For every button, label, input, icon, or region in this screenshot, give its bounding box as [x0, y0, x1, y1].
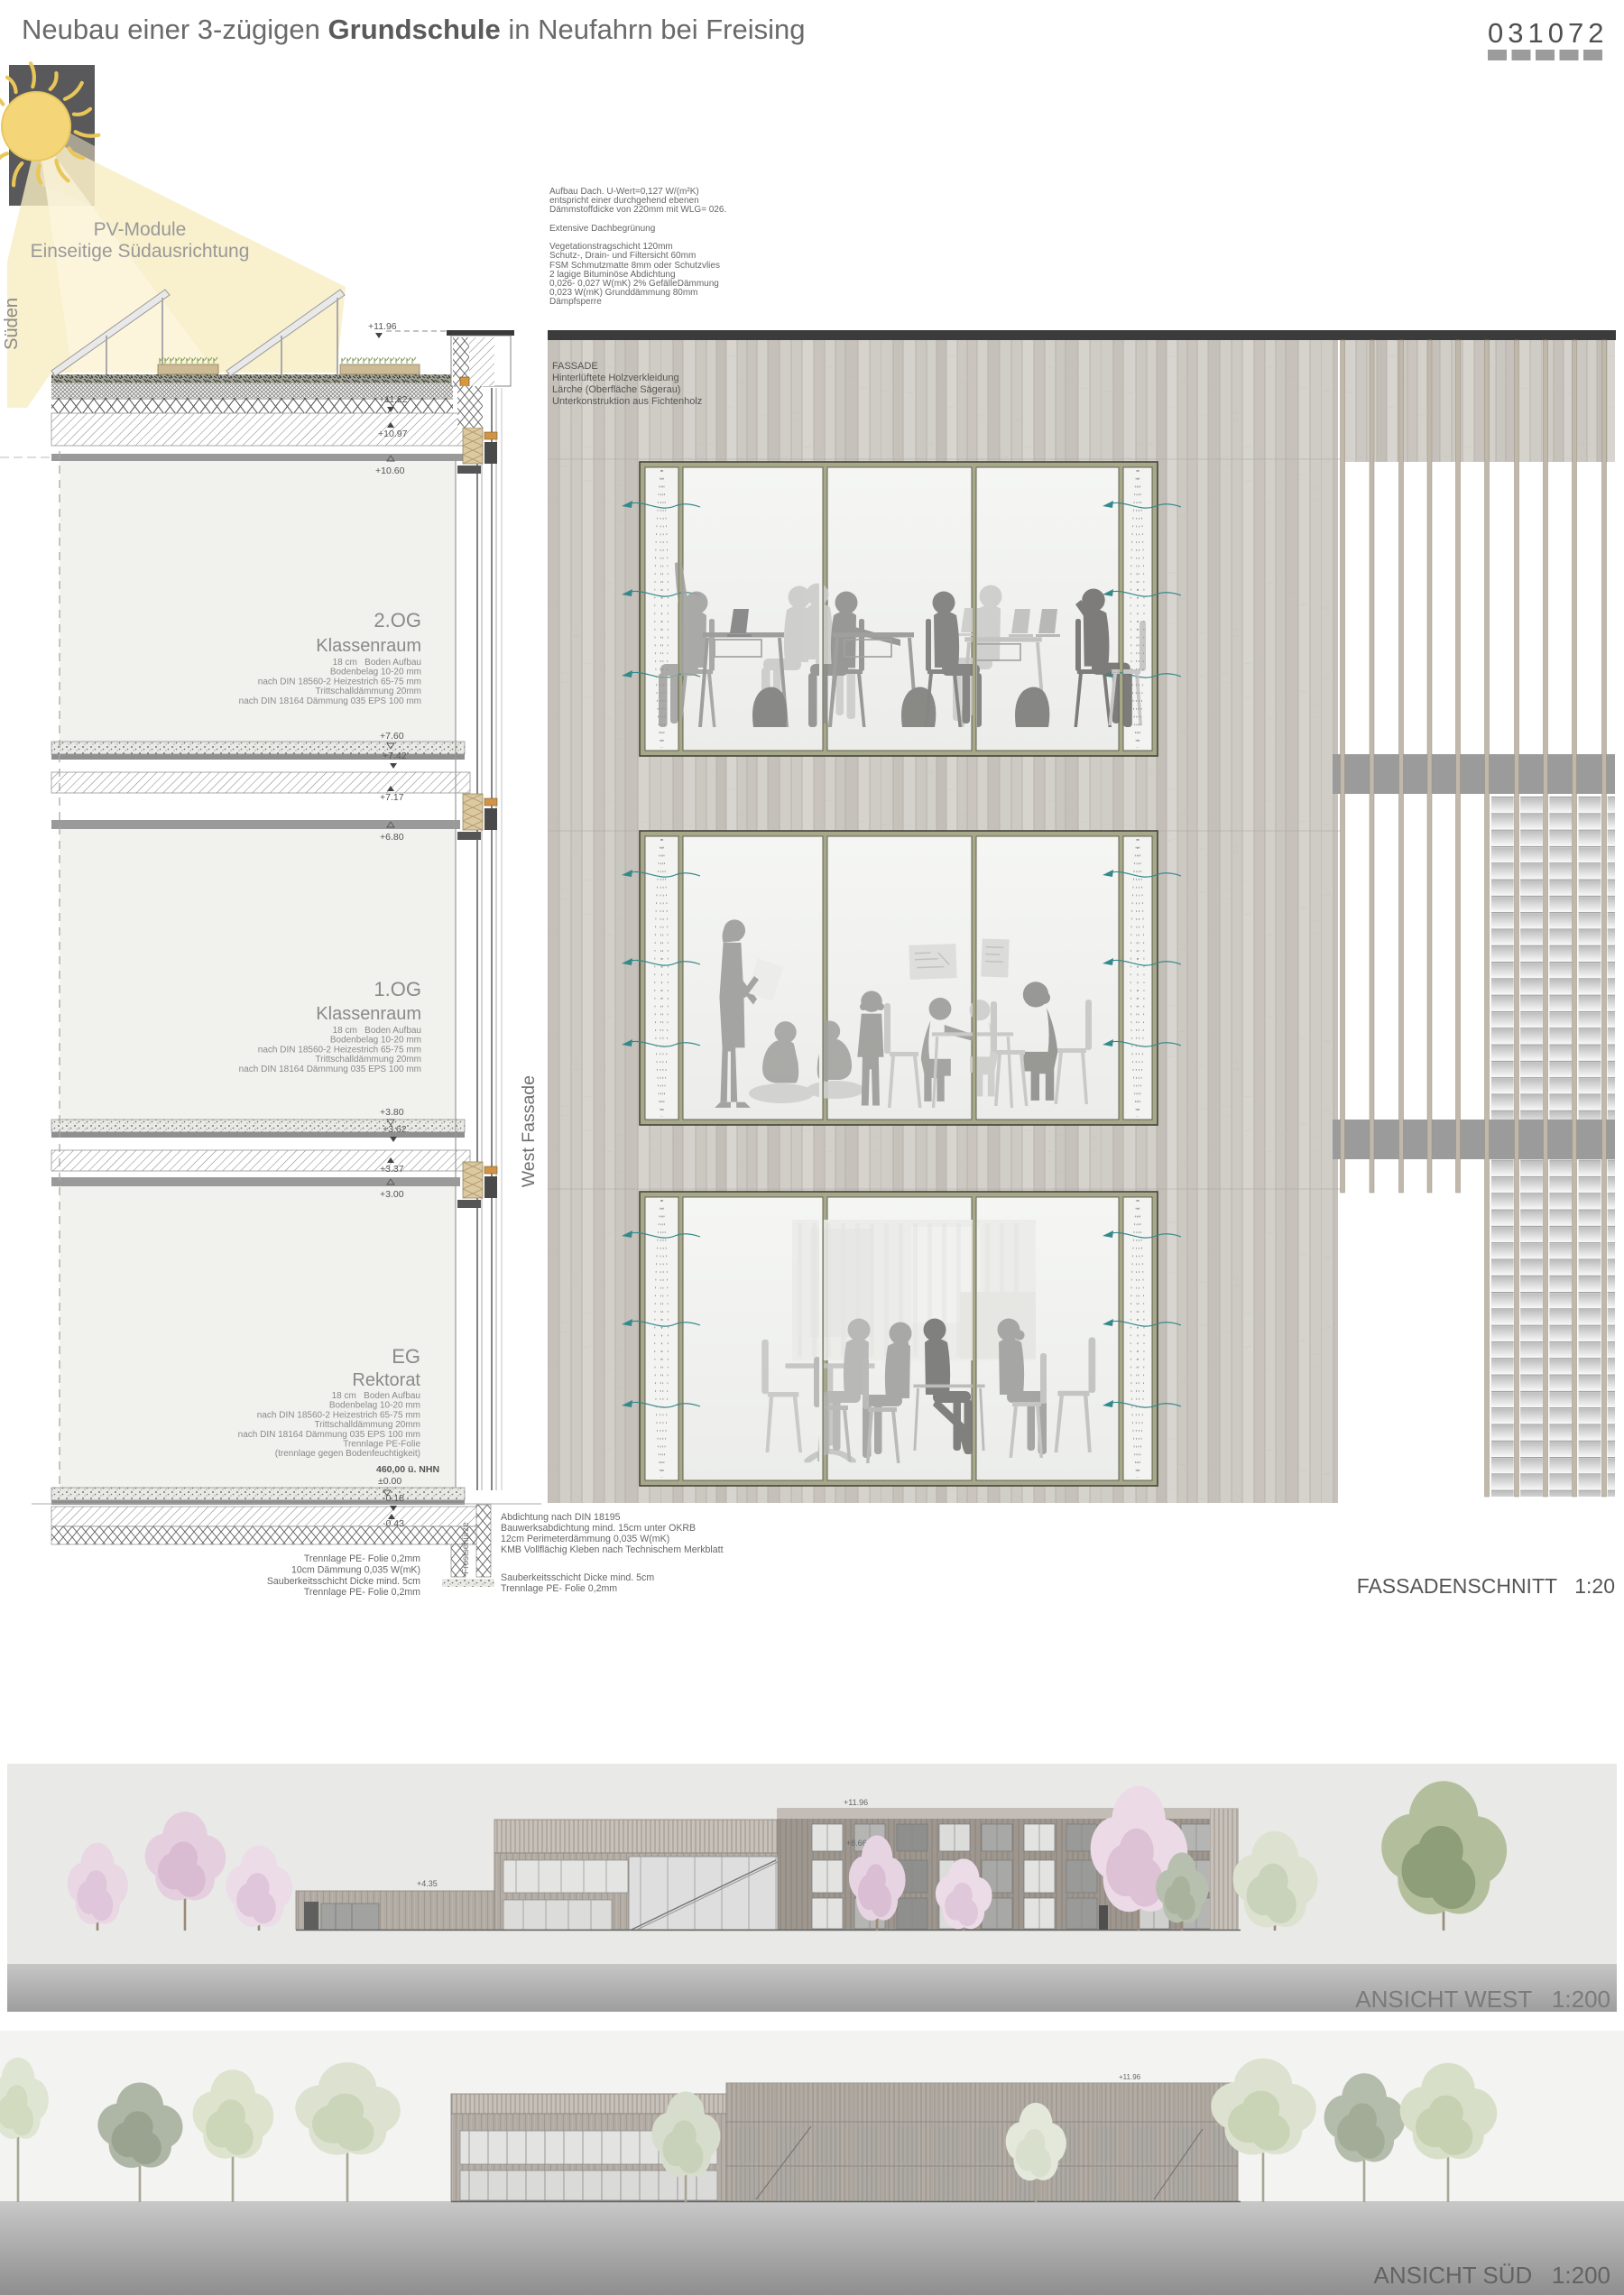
svg-text:±0.00: ±0.00: [378, 1476, 401, 1487]
svg-text:Sauberkeitsschicht Dicke mind.: Sauberkeitsschicht Dicke mind. 5cm: [501, 1572, 654, 1583]
svg-text:+10.60: +10.60: [375, 465, 405, 476]
svg-text:Sauberkeitsschicht Dicke mind.: Sauberkeitsschicht Dicke mind. 5cm: [267, 1576, 420, 1587]
svg-text:Trennlage PE- Folie 0,2mm: Trennlage PE- Folie 0,2mm: [304, 1553, 420, 1564]
svg-text:+11.96: +11.96: [844, 1798, 868, 1807]
svg-text:Trittschalldämmung 20mm: Trittschalldämmung 20mm: [316, 1055, 421, 1065]
svg-text:1.OG: 1.OG: [374, 978, 421, 1000]
svg-text:18 cm Boden Aufbau: 18 cm Boden Aufbau: [332, 1391, 420, 1401]
svg-text:nach DIN 18560-2 Heizestrich 6: nach DIN 18560-2 Heizestrich 65-75 mm: [257, 1410, 420, 1420]
svg-text:+3.37: +3.37: [380, 1164, 404, 1175]
svg-text:+3.62: +3.62: [383, 1124, 407, 1135]
svg-text:10cm Dämmung 0,035 W(mK): 10cm Dämmung 0,035 W(mK): [291, 1564, 420, 1575]
svg-text:Bodenbelag 10-20 mm: Bodenbelag 10-20 mm: [330, 668, 421, 677]
svg-text:nach DIN 18164 Dämmung 035 EPS: nach DIN 18164 Dämmung 035 EPS 100 mm: [238, 1430, 420, 1440]
svg-text:(trennlage gegen Bodenfeuchtig: (trennlage gegen Bodenfeuchtigkeit): [275, 1449, 420, 1459]
svg-text:nach DIN 18164 Dämmung 035 EPS: nach DIN 18164 Dämmung 035 EPS 100 mm: [239, 1065, 421, 1074]
svg-text:Bodenbelag 10-20 mm: Bodenbelag 10-20 mm: [330, 1036, 421, 1046]
svg-text:Trittschalldämmung 20mm: Trittschalldämmung 20mm: [316, 687, 421, 696]
svg-text:nach DIN 18560-2 Heizestrich 6: nach DIN 18560-2 Heizestrich 65-75 mm: [258, 677, 421, 687]
svg-text:+11.22: +11.22: [379, 394, 408, 405]
svg-text:+11.96: +11.96: [368, 321, 397, 332]
svg-text:Trennlage PE- Folie 0,2mm: Trennlage PE- Folie 0,2mm: [304, 1587, 420, 1598]
svg-text:-0.43: -0.43: [383, 1518, 404, 1529]
svg-text:2.OG: 2.OG: [374, 609, 421, 631]
svg-text:Trennlage PE- Folie 0,2mm: Trennlage PE- Folie 0,2mm: [501, 1583, 617, 1594]
svg-text:12cm Perimeterdämmung 0,035 W(: 12cm Perimeterdämmung 0,035 W(mK): [501, 1534, 669, 1544]
svg-text:18 cm Boden Aufbau: 18 cm Boden Aufbau: [333, 658, 421, 668]
svg-text:460,00 ü. NHN: 460,00 ü. NHN: [376, 1464, 439, 1475]
svg-text:nach DIN 18560-2 Heizestrich 6: nach DIN 18560-2 Heizestrich 65-75 mm: [258, 1045, 421, 1055]
svg-text:+8.66: +8.66: [846, 1839, 867, 1848]
svg-text:Bodenbelag 10-20 mm: Bodenbelag 10-20 mm: [329, 1401, 420, 1411]
svg-text:+3.80: +3.80: [380, 1107, 404, 1118]
svg-text:Trennlage PE-Folie: Trennlage PE-Folie: [343, 1440, 420, 1450]
svg-text:+7.17: +7.17: [380, 792, 404, 803]
svg-text:+3.00: +3.00: [380, 1189, 404, 1200]
svg-text:Bauwerksabdichtung mind. 15cm: Bauwerksabdichtung mind. 15cm unter OKRB: [501, 1523, 696, 1534]
svg-text:Trittschalldämmung 20mm: Trittschalldämmung 20mm: [315, 1420, 420, 1430]
svg-text:+10.97: +10.97: [378, 429, 408, 439]
svg-text:+4.35: +4.35: [417, 1879, 438, 1888]
svg-text:+7.42: +7.42: [383, 751, 407, 761]
svg-text:nach DIN 18164 Dämmung 035 EPS: nach DIN 18164 Dämmung 035 EPS 100 mm: [239, 696, 421, 706]
svg-text:EG: EG: [392, 1345, 420, 1368]
svg-text:18 cm Boden Aufbau: 18 cm Boden Aufbau: [333, 1026, 421, 1036]
svg-text:-0.18: -0.18: [383, 1493, 404, 1504]
svg-text:Klassenraum: Klassenraum: [316, 636, 421, 656]
svg-text:+7.60: +7.60: [380, 731, 404, 742]
svg-text:+6.80: +6.80: [380, 832, 404, 843]
svg-text:KMB Vollflächig Kleben nach Te: KMB Vollflächig Kleben nach Technischem …: [501, 1544, 724, 1555]
svg-text:Abdichtung nach DIN 18195: Abdichtung nach DIN 18195: [501, 1512, 621, 1523]
svg-text:+11.96: +11.96: [1119, 2073, 1141, 2081]
svg-text:Klassenraum: Klassenraum: [316, 1004, 421, 1024]
svg-text:Rektorat: Rektorat: [352, 1370, 420, 1390]
svg-text:Frostschürze: Frostschürze: [461, 1522, 471, 1574]
